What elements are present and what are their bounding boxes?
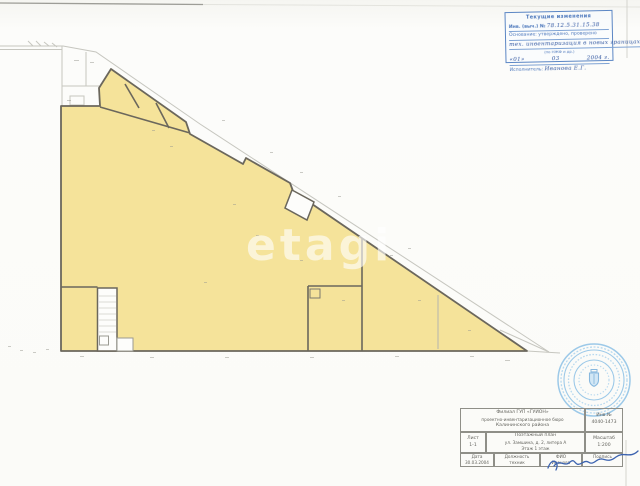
inventory-cell: Инв.№ 4040-1473	[585, 408, 623, 432]
position-cell: Должность техник	[494, 453, 540, 467]
seal-emblem-icon	[590, 370, 599, 387]
org-cell: Филиал ГУП «ГУИОН» проектно-инвентаризац…	[460, 408, 585, 432]
handwritten-signature	[540, 448, 640, 478]
sheet-cell: Лист 1-1	[460, 432, 486, 453]
watermark-text: etagi	[246, 220, 393, 271]
scanned-floor-plan-page: etagi Текущие изменения Инв. (выч.) № 78…	[0, 0, 640, 486]
correction-stamp: Текущие изменения Инв. (выч.) № 78.12.5.…	[504, 10, 613, 63]
date-cell: Дата 30.03.2004	[460, 453, 494, 467]
round-seal-icon	[556, 342, 632, 418]
